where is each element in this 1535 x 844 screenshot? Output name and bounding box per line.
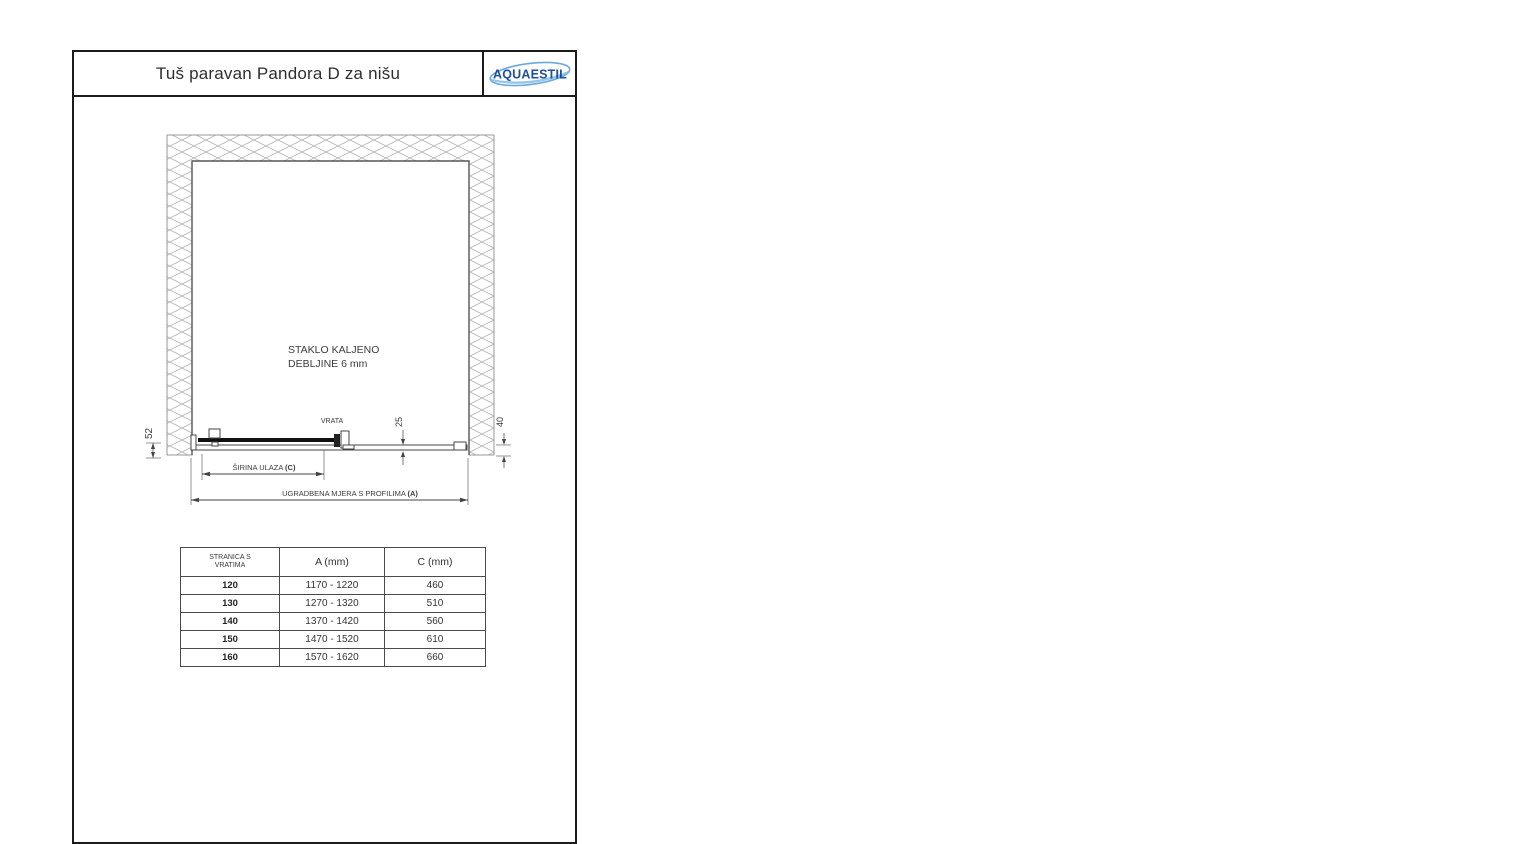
size-table-header-row: STRANICA S VRATIMA A (mm) C (mm): [181, 548, 486, 577]
svg-text:40: 40: [495, 417, 505, 427]
svg-text:ŠIRINA ULAZA (C): ŠIRINA ULAZA (C): [233, 463, 296, 472]
header-c-mm: C (mm): [385, 548, 486, 577]
dim-40: 40: [495, 417, 511, 468]
cell-a-range: 1370 - 1420: [280, 613, 385, 631]
cell-c-value: 510: [385, 595, 486, 613]
cell-c-value: 610: [385, 631, 486, 649]
table-row: 120 1170 - 1220 460: [181, 577, 486, 595]
cell-c-value: 660: [385, 649, 486, 667]
glass-note-line1: STAKLO KALJENO: [288, 344, 379, 356]
cell-size: 160: [181, 649, 280, 667]
cell-a-range: 1270 - 1320: [280, 595, 385, 613]
dim-25: 25: [394, 417, 405, 465]
cell-a-range: 1170 - 1220: [280, 577, 385, 595]
cell-a-range: 1570 - 1620: [280, 649, 385, 667]
left-wall-profile: [191, 435, 196, 450]
svg-text:52: 52: [144, 427, 155, 439]
title-bar: Tuš paravan Pandora D za nišu AQUAESTIL: [74, 52, 575, 97]
table-row: 150 1470 - 1520 610: [181, 631, 486, 649]
niche-inner-edge: [192, 161, 469, 455]
spec-sheet-page: Tuš paravan Pandora D za nišu AQUAESTIL …: [72, 50, 577, 844]
svg-text:UGRADBENA MJERA S PROFILIMA (A: UGRADBENA MJERA S PROFILIMA (A): [282, 489, 418, 498]
cell-size: 130: [181, 595, 280, 613]
table-row: 130 1270 - 1320 510: [181, 595, 486, 613]
page-title: Tuš paravan Pandora D za nišu: [74, 52, 482, 95]
header-a-mm: A (mm): [280, 548, 385, 577]
table-row: 140 1370 - 1420 560: [181, 613, 486, 631]
track-profile: [191, 445, 467, 450]
cell-size: 150: [181, 631, 280, 649]
right-roller-foot: [343, 445, 354, 449]
cell-size: 120: [181, 577, 280, 595]
niche-wall-hatched: [167, 135, 494, 455]
cell-a-range: 1470 - 1520: [280, 631, 385, 649]
dim-52: 52: [144, 427, 161, 458]
brand-logo-cell: AQUAESTIL: [482, 52, 575, 95]
door-label: VRATA: [321, 418, 344, 425]
left-roller-foot: [212, 442, 218, 446]
dim-entry-width-c: ŠIRINA ULAZA (C): [202, 450, 324, 480]
left-roller-bracket: [209, 429, 220, 438]
technical-drawing: STAKLO KALJENO DEBLJINE 6 mm VRATA 52: [137, 127, 517, 512]
aquaestil-logo: AQUAESTIL: [488, 57, 572, 91]
cell-c-value: 460: [385, 577, 486, 595]
table-row: 160 1570 - 1620 660: [181, 649, 486, 667]
cell-c-value: 560: [385, 613, 486, 631]
logo-wordmark: AQUAESTIL: [492, 67, 566, 81]
sliding-door-glass: [198, 438, 334, 442]
cell-size: 140: [181, 613, 280, 631]
right-wall-profile: [454, 442, 466, 450]
size-table: STRANICA S VRATIMA A (mm) C (mm) 120 117…: [180, 547, 486, 667]
door-end-hardware: [334, 434, 340, 447]
header-side: STRANICA S VRATIMA: [181, 548, 280, 577]
glass-note-line2: DEBLJINE 6 mm: [288, 358, 368, 370]
svg-text:25: 25: [394, 417, 404, 427]
